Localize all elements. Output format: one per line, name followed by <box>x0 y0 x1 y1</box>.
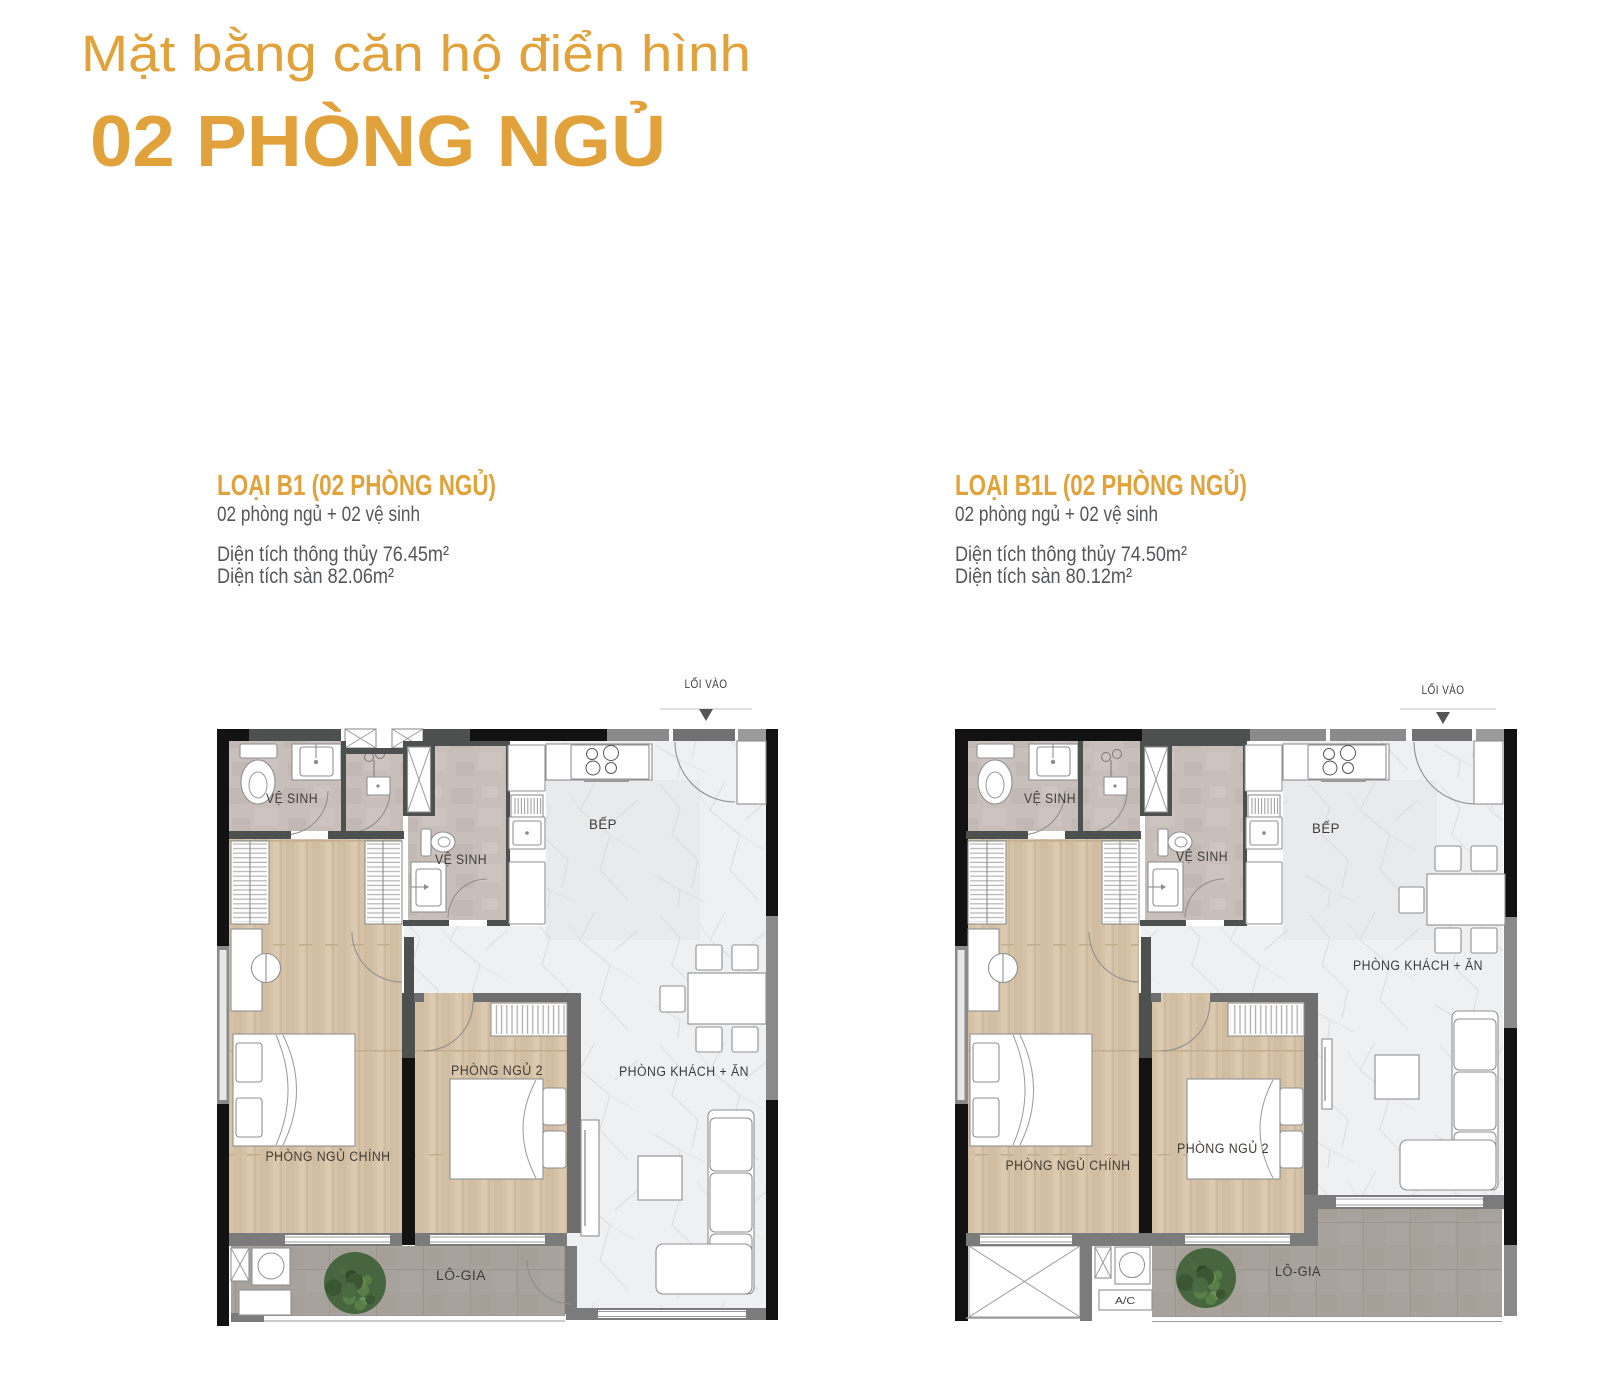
svg-text:PHÒNG NGỦ CHÍNH: PHÒNG NGỦ CHÍNH <box>1006 1158 1131 1173</box>
svg-text:PHÒNG KHÁCH + ĂN: PHÒNG KHÁCH + ĂN <box>1353 958 1483 973</box>
svg-text:LOẠI B1L (02 PHÒNG NGỦ): LOẠI B1L (02 PHÒNG NGỦ) <box>955 468 1247 502</box>
svg-text:PHÒNG NGỦ 2: PHÒNG NGỦ 2 <box>451 1063 543 1078</box>
svg-text:VỆ SINH: VỆ SINH <box>1176 849 1228 864</box>
svg-text:VỆ SINH: VỆ SINH <box>266 791 318 806</box>
svg-text:02 phòng ngủ + 02 vệ sinh: 02 phòng ngủ + 02 vệ sinh <box>217 503 420 526</box>
svg-text:PHÒNG KHÁCH + ĂN: PHÒNG KHÁCH + ĂN <box>619 1064 749 1079</box>
svg-text:Mặt bằng căn hộ điển hình: Mặt bằng căn hộ điển hình <box>81 25 751 82</box>
svg-text:Diện tích thông thủy 74.50m²: Diện tích thông thủy 74.50m² <box>955 543 1187 566</box>
svg-text:Diện tích sàn 80.12m²: Diện tích sàn 80.12m² <box>955 565 1132 588</box>
svg-text:Diện tích thông thủy 76.45m²: Diện tích thông thủy 76.45m² <box>217 543 449 566</box>
svg-text:LỐI VÀO: LỐI VÀO <box>1422 682 1465 697</box>
svg-text:VỆ SINH: VỆ SINH <box>1024 791 1076 806</box>
svg-text:LÔ-GIA: LÔ-GIA <box>436 1268 486 1283</box>
svg-text:VỆ SINH: VỆ SINH <box>435 852 487 867</box>
svg-text:A/C: A/C <box>1115 1295 1135 1307</box>
svg-text:02 PHÒNG NGỦ: 02 PHÒNG NGỦ <box>90 101 666 182</box>
svg-text:BẾP: BẾP <box>589 817 617 832</box>
svg-text:LỐI VÀO: LỐI VÀO <box>685 676 728 691</box>
svg-text:LOẠI B1 (02 PHÒNG NGỦ): LOẠI B1 (02 PHÒNG NGỦ) <box>217 468 496 502</box>
svg-text:PHÒNG NGỦ 2: PHÒNG NGỦ 2 <box>1177 1141 1269 1156</box>
svg-text:02 phòng ngủ + 02 vệ sinh: 02 phòng ngủ + 02 vệ sinh <box>955 503 1158 526</box>
svg-text:BẾP: BẾP <box>1312 821 1340 836</box>
svg-text:Diện tích sàn 82.06m²: Diện tích sàn 82.06m² <box>217 565 394 588</box>
svg-text:PHÒNG NGỦ CHÍNH: PHÒNG NGỦ CHÍNH <box>266 1149 391 1164</box>
svg-text:LÔ-GIA: LÔ-GIA <box>1275 1264 1321 1279</box>
